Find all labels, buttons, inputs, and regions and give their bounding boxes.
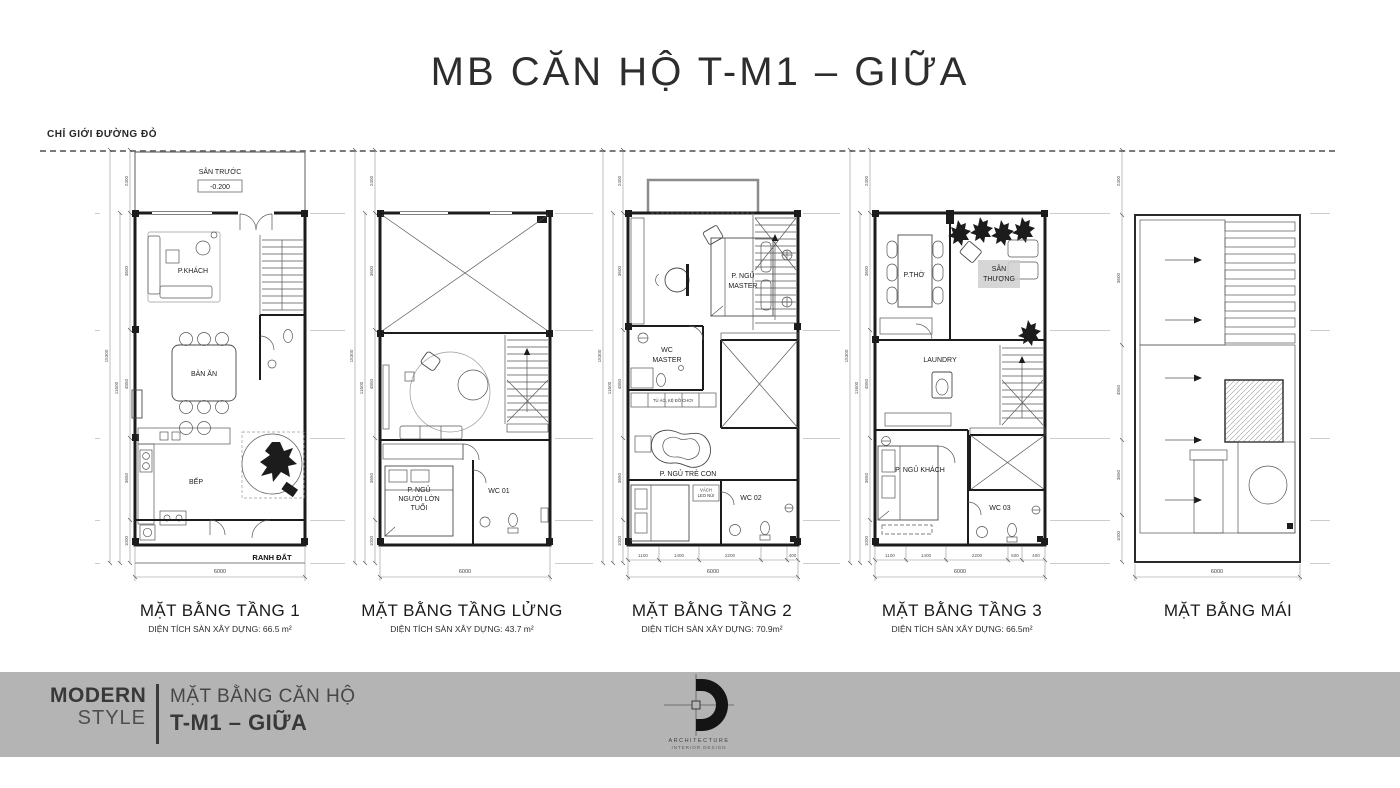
plan-title-mezzanine: MẶT BẰNG TẦNG LỬNG [345,601,579,621]
dim-label: 500 [1011,553,1019,558]
plan-title-floor2: MẶT BẰNG TẦNG 2 [595,601,829,621]
plan-floor2: 2400 3600 4850 3650 1000 15300 11600 [593,140,803,610]
room-label-bed-elderly: P. NGỦ [407,485,430,494]
dim-width-label: 6000 [214,569,226,575]
dim-total-label: 15300 [104,349,109,362]
room-label-front-yard: SÂN TRƯỚC [199,167,242,176]
dim-label: 1100 [885,553,895,558]
room-label-dining: BÀN ĂN [191,369,217,378]
plan-area-floor1: DIỆN TÍCH SÀN XÂY DỰNG: 66.5 m² [110,624,330,634]
logo-architecture-text: ARCHITECTURE [634,738,764,744]
plan-area-floor2: DIỆN TÍCH SÀN XÂY DỰNG: 70.9m² [595,624,829,634]
plan-floor1-drawing: 2400 3600 4850 3650 1000 15300 11600 SÂN… [100,140,310,610]
room-label-living: P.KHÁCH [178,266,208,275]
dim-label: 1000 [617,535,622,546]
dim-total-label: 11600 [854,381,859,394]
dim-width-label: 6000 [459,569,471,575]
room-label-guest: P. NGỦ KHÁCH [895,465,945,474]
dim-total-label: 15300 [349,349,354,362]
plan-mezzanine-drawing: 2400 3600 4850 3650 1000 15300 11600 [345,140,555,610]
room-label-terrace: THƯỢNG [983,276,1015,283]
dim-label: 4850 [124,378,129,389]
dim-label: 3650 [617,472,622,483]
page-title: MB CĂN HỘ T-M1 – GIỮA [0,50,1400,95]
room-label-wc03: WC 03 [989,505,1011,512]
dim-width-label: 6000 [707,569,719,575]
footer-band: MODERN STYLE MẶT BẰNG CĂN HỘ T-M1 – GIỮA… [0,672,1400,757]
dim-label: 2400 [617,175,622,186]
dim-total-label: 15300 [844,349,849,362]
caption-floor2: MẶT BẰNG TẦNG 2 DIỆN TÍCH SÀN XÂY DỰNG: … [595,601,829,634]
plan-mezzanine: 2400 3600 4850 3650 1000 15300 11600 [345,140,555,610]
brand-style: STYLE [50,707,146,729]
dim-label: 1000 [1116,530,1121,541]
dim-label: 400 [789,553,797,558]
company-logo: ARCHITECTURE INTERIOR DESIGN [634,672,764,757]
window [152,210,212,216]
dim-label: 3600 [864,265,869,276]
plan-title-floor3: MẶT BẰNG TẦNG 3 [845,601,1079,621]
dim-label: 1100 [638,553,648,558]
dim-label: 2200 [725,553,736,558]
dim-label: 2400 [369,175,374,186]
dim-label: 3600 [369,265,374,276]
room-label-bed-elderly: TUỔI [411,503,428,512]
plan-floor3: 2400 3600 4850 3650 1000 15300 11600 P.T… [840,140,1050,610]
room-label-wc-master: MASTER [652,357,681,364]
dim-label: 400 [1032,553,1040,558]
room-label-wc02: WC 02 [740,495,762,502]
dim-label: 2400 [124,175,129,186]
room-label-terrace: SÂN [992,264,1006,273]
dim-label: 3650 [1116,469,1121,480]
logo-d-icon [634,672,764,738]
plan-title-floor1: MẶT BẰNG TẦNG 1 [110,601,330,621]
caption-floor3: MẶT BẰNG TẦNG 3 DIỆN TÍCH SÀN XÂY DỰNG: … [845,601,1079,634]
dim-label: 3650 [369,472,374,483]
dim-label: 3650 [124,472,129,483]
room-label-laundry: LAUNDRY [923,357,957,364]
caption-floor1: MẶT BẰNG TẦNG 1 DIỆN TÍCH SÀN XÂY DỰNG: … [110,601,330,634]
dim-label: 1400 [674,553,685,558]
dim-label: 1000 [369,535,374,546]
caption-mezzanine: MẶT BẰNG TẦNG LỬNG DIỆN TÍCH SÀN XÂY DỰN… [345,601,579,634]
dim-total-label: 15300 [597,349,602,362]
caption-roof: MẶT BẰNG MÁI [1118,601,1338,621]
room-label-wc-master: WC [661,347,673,354]
dim-label: 2400 [1116,175,1121,186]
plan-area-floor3: DIỆN TÍCH SÀN XÂY DỰNG: 66.5m² [845,624,1079,634]
room-label-kids: P. NGỦ TRẺ CON [660,469,717,478]
dim-label: 4850 [1116,384,1121,395]
room-label-master: P. NGỦ [731,271,754,280]
room-label-bed-elderly: NGƯỜI LỚN [398,494,439,503]
plan-floor2-drawing: 2400 3600 4850 3650 1000 15300 11600 [593,140,803,610]
plan-area-mezzanine: DIỆN TÍCH SÀN XÂY DỰNG: 43.7 m² [345,624,579,634]
plan-roof: 2400 3600 4850 3650 1000 [1110,140,1310,610]
dim-width-label: 6000 [1211,569,1223,575]
sheet: MB CĂN HỘ T-M1 – GIỮA CHỈ GIỚI ĐƯỜNG ĐỎ … [0,0,1400,788]
level-label: -0.200 [210,184,230,191]
dim-width-label: 6000 [954,569,966,575]
footer-subtitle: MẶT BẰNG CĂN HỘ [170,685,356,709]
plan-floor1: 2400 3600 4850 3650 1000 15300 11600 SÂN… [100,140,310,610]
plan-roof-drawing: 2400 3600 4850 3650 1000 [1110,140,1310,610]
plan-floor3-drawing: 2400 3600 4850 3650 1000 15300 11600 P.T… [840,140,1050,610]
dim-label: 1400 [921,553,932,558]
dim-label: 4850 [617,378,622,389]
dim-label: 2200 [972,553,983,558]
footer-divider [156,684,159,744]
dim-total-label: 11600 [607,381,612,394]
footer-title-block: MẶT BẰNG CĂN HỘ T-M1 – GIỮA [170,685,356,736]
dim-label: 4850 [369,378,374,389]
label-climbing-wall: VÁCH [700,488,712,493]
dim-label: 3600 [1116,272,1121,283]
red-boundary-label: CHỈ GIỚI ĐƯỜNG ĐỎ [47,129,157,140]
dim-label: 4850 [864,378,869,389]
plan-title-roof: MẶT BẰNG MÁI [1118,601,1338,621]
dim-label: 3650 [864,472,869,483]
dim-total-label: 11600 [359,381,364,394]
room-label-worship: P.THỜ [903,270,924,279]
dim-label: 1000 [124,535,129,546]
footer-title: T-M1 – GIỮA [170,709,356,737]
label-climbing-wall: LEO NÚI [698,493,715,498]
dim-label: 3600 [124,265,129,276]
brand-block: MODERN STYLE [50,684,146,729]
dim-label: 2400 [864,175,869,186]
label-toy-shelf: TỦ ÁO, KỆ ĐỒ CHƠI [653,398,693,403]
skylight [1225,380,1283,442]
room-label-wc01: WC 01 [488,488,510,495]
brand-modern: MODERN [50,684,146,707]
logo-interior-text: INTERIOR DESIGN [634,745,764,750]
stair [260,235,303,315]
dim-label: 1000 [864,535,869,546]
dim-total-label: 11600 [114,381,119,394]
dim-label: 3600 [617,265,622,276]
land-boundary-label: RANH ĐẤT [252,552,292,562]
